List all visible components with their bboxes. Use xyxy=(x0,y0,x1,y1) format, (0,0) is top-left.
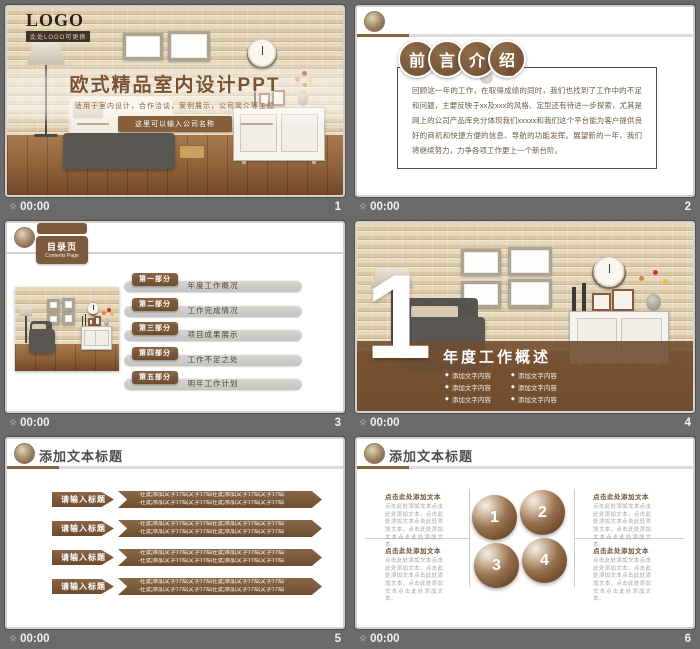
clock-hand xyxy=(609,264,610,274)
slide-cell-3: 目录页 Contents Page xyxy=(0,216,350,432)
slide-header-title: 添加文本标题 xyxy=(39,446,123,465)
text-block-body: 点击此处添加文本点击此处添加文本，点击此处添加文本点击此处添加文本，点击此处添加… xyxy=(385,558,443,604)
decor-dash xyxy=(77,123,109,125)
toc-item[interactable]: 明年工作计划 第五部分 xyxy=(124,371,302,391)
slide-number: 2 xyxy=(685,201,691,213)
bullet-item: ◆添加文字内容 xyxy=(511,393,577,405)
picture-frame xyxy=(508,279,552,307)
picture-frame xyxy=(47,299,59,311)
cover-title: 欧式精品室内设计PPT xyxy=(7,70,343,97)
star-icon[interactable]: ☆ xyxy=(9,634,17,643)
text-block-heading: 点击此处添加文本 xyxy=(593,545,651,555)
text-block-body: 点击此处添加文本点击此处添加文本，点击此处添加文本点击此处添加文本，点击此处添加… xyxy=(593,504,651,550)
decor-dot-brown xyxy=(507,67,516,76)
text-block-body: 点击此处添加文本点击此处添加文本，点击此处添加文本点击此处添加文本，点击此处添加… xyxy=(385,504,443,550)
text-block: 点击此处添加文本 点击此处添加文本点击此处添加文本，点击此处添加文本点击此处添加… xyxy=(593,545,651,604)
slide-number: 4 xyxy=(685,417,691,429)
text-block: 点击此处添加文本 点击此处添加文本点击此处添加文本，点击此处添加文本点击此处添加… xyxy=(385,491,443,550)
bullet-text: 添加文字内容 xyxy=(452,382,491,392)
arrow-label: 请输入标题 xyxy=(52,521,114,536)
arrow-label: 请输入标题 xyxy=(52,492,114,507)
floor-lamp-pole xyxy=(25,316,27,343)
foreword-paragraph: 回顾这一年的工作，在取得成绩的同时，我们也找到了工作中的不足和问题，主要反映于x… xyxy=(412,83,642,158)
toc-item-label: 第三部分 xyxy=(132,322,178,335)
logo-badge xyxy=(364,11,385,32)
diamond-bullet-icon: ◆ xyxy=(445,385,449,390)
progress-fill xyxy=(357,466,409,469)
picture-frame xyxy=(168,31,210,61)
arrow-banner: ·在此添加文字介绍文字介绍在此添加文字介绍文字介绍 ·在此添加文字介绍文字介绍在… xyxy=(118,520,322,537)
decor-dash xyxy=(241,123,273,125)
slide-preview-grid: LOGO 此处LOGO可更换 欧式精品室内设计PPT 适用于室内设计，合作洽谈，… xyxy=(0,0,700,649)
text-block-heading: 点击此处添加文本 xyxy=(385,545,443,555)
bullet-item: ◆添加文字内容 xyxy=(511,381,577,393)
diamond-bullet-icon: ◆ xyxy=(511,373,515,378)
section-bullet-list: ◆添加文字内容 ◆添加文字内容 ◆添加文字内容 ◆添加文字内容 ◆添加文字内容 … xyxy=(445,369,577,405)
slide-time: 00:00 xyxy=(370,201,399,213)
circle-step-1[interactable]: 1 xyxy=(472,495,517,540)
slide-cell-4: 1 年度工作概述 ◆添加文字内容 ◆添加文字内容 ◆添加文字内容 ◆添加文字内容… xyxy=(350,216,700,432)
slide-thumbnail-5[interactable]: 添加文本标题 请输入标题 ·在此添加文字介绍文字介绍在此添加文字介绍文字介绍 ·… xyxy=(5,437,345,629)
picture-frame xyxy=(62,298,76,311)
flower xyxy=(102,311,106,315)
slide-meta-3: ☆00:00 3 xyxy=(5,413,345,432)
slide-number: 3 xyxy=(335,417,341,429)
contents-title: 目录页 xyxy=(36,240,88,253)
slide-meta-6: ☆00:00 6 xyxy=(355,629,695,648)
slide-cell-5: 添加文本标题 请输入标题 ·在此添加文字介绍文字介绍在此添加文字介绍文字介绍 ·… xyxy=(0,432,350,648)
banner-line: ·在此添加文字介绍文字介绍在此添加文字介绍文字介绍 xyxy=(118,587,322,595)
tabletop-frame xyxy=(612,289,634,312)
slide-cell-6: 添加文本标题 点击此处添加文本 点击此处添加文本点击此处添加文本，点击此处添加文… xyxy=(350,432,700,648)
floor-lamp-base xyxy=(34,134,58,137)
star-icon[interactable]: ☆ xyxy=(359,634,367,643)
bullet-item: ◆添加文字内容 xyxy=(445,381,511,393)
arrow-banner: ·在此添加文字介绍文字介绍在此添加文字介绍文字介绍 ·在此添加文字介绍文字介绍在… xyxy=(118,549,322,566)
cover-subtitle: 适用于室内设计，合作洽谈，案例展示，公司简介等主题 xyxy=(7,101,343,111)
candlestick xyxy=(85,314,86,327)
slide-number: 1 xyxy=(335,201,341,213)
flower xyxy=(110,312,114,316)
circle-step-2[interactable]: 2 xyxy=(520,490,565,535)
slide-number: 6 xyxy=(685,633,691,645)
text-block-heading: 点击此处添加文本 xyxy=(593,491,651,501)
text-block-body: 点击此处添加文本点击此处添加文本，点击此处添加文本点击此处添加文本，点击此处添加… xyxy=(593,558,651,604)
banner-line: ·在此添加文字介绍文字介绍在此添加文字介绍文字介绍 xyxy=(118,529,322,537)
floor-lamp-shade xyxy=(27,43,65,65)
progress-bar xyxy=(7,466,343,469)
interior-photo xyxy=(15,287,119,371)
slide-thumbnail-2[interactable]: 前 言 介 绍 回顾这一年的工作，在取得成绩的同时，我们也找到了工作中的不足和问… xyxy=(355,5,695,197)
star-icon[interactable]: ☆ xyxy=(359,202,367,211)
slide-meta-2: ☆00:00 2 xyxy=(355,197,695,216)
banner-line: ·在此添加文字介绍文字介绍在此添加文字介绍文字介绍 xyxy=(118,579,322,587)
slide-thumbnail-6[interactable]: 添加文本标题 点击此处添加文本 点击此处添加文本点击此处添加文本，点击此处添加文… xyxy=(355,437,695,629)
wooden-crate xyxy=(179,145,205,159)
bullet-text: 添加文字内容 xyxy=(518,394,557,404)
cabinet-leg xyxy=(242,160,246,164)
tabletop-frame xyxy=(88,318,94,326)
star-icon[interactable]: ☆ xyxy=(9,202,17,211)
bullet-text: 添加文字内容 xyxy=(518,370,557,380)
circle-step-4[interactable]: 4 xyxy=(522,538,567,583)
toc-item-label: 第四部分 xyxy=(132,347,178,360)
arrow-label: 请输入标题 xyxy=(52,550,114,565)
bullet-item: ◆添加文字内容 xyxy=(445,369,511,381)
company-name-button[interactable]: 这里可以输入公司名称 xyxy=(118,116,232,132)
slide-meta-4: ☆00:00 4 xyxy=(355,413,695,432)
armchair-base xyxy=(63,133,175,169)
star-icon[interactable]: ☆ xyxy=(9,418,17,427)
circle-step-3[interactable]: 3 xyxy=(474,543,519,588)
banner-line: ·在此添加文字介绍文字介绍在此添加文字介绍文字介绍 xyxy=(118,500,322,508)
toc-item-label: 第二部分 xyxy=(132,298,178,311)
slide-meta-5: ☆00:00 5 xyxy=(5,629,345,648)
text-block: 点击此处添加文本 点击此处添加文本点击此处添加文本，点击此处添加文本点击此处添加… xyxy=(593,491,651,550)
slide-cell-2: 前 言 介 绍 回顾这一年的工作，在取得成绩的同时，我们也找到了工作中的不足和问… xyxy=(350,0,700,216)
flower xyxy=(653,270,658,275)
cabinet-door xyxy=(95,330,108,346)
divider-line xyxy=(469,489,470,587)
bullet-text: 添加文字内容 xyxy=(452,394,491,404)
picture-frame xyxy=(508,247,552,275)
section-title: 年度工作概述 xyxy=(443,346,551,367)
text-block-heading: 点击此处添加文本 xyxy=(385,491,443,501)
picture-frame xyxy=(461,249,501,275)
company-name-row: 这里可以输入公司名称 xyxy=(7,116,343,132)
diamond-bullet-icon: ◆ xyxy=(511,385,515,390)
clock-hand xyxy=(262,46,263,55)
bullet-item: ◆添加文字内容 xyxy=(511,369,577,381)
picture-frame xyxy=(123,33,163,60)
slide-header-title: 添加文本标题 xyxy=(389,446,473,465)
arrow-label: 请输入标题 xyxy=(52,579,114,594)
logo-badge xyxy=(364,443,385,464)
cover-text-block: 欧式精品室内设计PPT 适用于室内设计，合作洽谈，案例展示，公司简介等主题 这里… xyxy=(7,70,343,132)
toc-item-label: 第五部分 xyxy=(132,371,178,384)
bullet-text: 添加文字内容 xyxy=(452,370,491,380)
contents-top-tab xyxy=(37,223,87,234)
toc-item[interactable]: 项目成果展示 第三部分 xyxy=(124,322,302,342)
toc-item[interactable]: 年度工作概况 第一部分 xyxy=(124,273,302,293)
logo-subtext: 此处LOGO可更换 xyxy=(26,31,90,42)
tabletop-frame xyxy=(592,293,610,312)
bullet-text: 添加文字内容 xyxy=(518,382,557,392)
flower xyxy=(639,276,644,281)
foreword-text-box: 回顾这一年的工作，在取得成绩的同时，我们也找到了工作中的不足和问题，主要反映于x… xyxy=(397,67,657,169)
banner-line: ·在此添加文字介绍文字介绍在此添加文字介绍文字介绍 xyxy=(118,558,322,566)
bullet-item: ◆添加文字内容 xyxy=(445,393,511,405)
picture-frame xyxy=(62,312,76,325)
toc-item[interactable]: 工作不足之处 第四部分 xyxy=(124,347,302,367)
slide-time: 00:00 xyxy=(370,417,399,429)
floor-lamp-shade xyxy=(19,307,33,316)
arrow-banner: ·在此添加文字介绍文字介绍在此添加文字介绍文字介绍 ·在此添加文字介绍文字介绍在… xyxy=(118,578,322,595)
logo-badge xyxy=(14,443,35,464)
wall-clock xyxy=(592,257,626,289)
logo-badge xyxy=(14,227,35,248)
progress-bar xyxy=(357,34,693,37)
logo-text: LOGO xyxy=(26,11,84,31)
arrow-banner: ·在此添加文字介绍文字介绍在此添加文字介绍文字介绍 ·在此添加文字介绍文字介绍在… xyxy=(118,491,322,508)
slide-meta-1: ☆00:00 1 xyxy=(5,197,345,216)
contents-subtitle: Contents Page xyxy=(40,253,84,258)
banner-line: ·在此添加文字介绍文字介绍在此添加文字介绍文字介绍 xyxy=(118,521,322,529)
text-block: 点击此处添加文本 点击此处添加文本点击此处添加文本，点击此处添加文本点击此处添加… xyxy=(385,545,443,604)
cabinet-leg xyxy=(84,349,85,351)
diamond-bullet-icon: ◆ xyxy=(511,397,515,402)
toc-item-label: 第一部分 xyxy=(132,273,178,286)
banner-line: ·在此添加文字介绍文字介绍在此添加文字介绍文字介绍 xyxy=(118,550,322,558)
slide-thumbnail-4[interactable]: 1 年度工作概述 ◆添加文字内容 ◆添加文字内容 ◆添加文字内容 ◆添加文字内容… xyxy=(355,221,695,413)
diamond-bullet-icon: ◆ xyxy=(445,373,449,378)
candlestick xyxy=(572,287,576,311)
progress-bar xyxy=(357,466,693,469)
slide-cell-1: LOGO 此处LOGO可更换 欧式精品室内设计PPT 适用于室内设计，合作洽谈，… xyxy=(0,0,350,216)
armchair-base xyxy=(29,329,55,353)
candlestick xyxy=(582,283,586,311)
progress-fill xyxy=(7,466,59,469)
section-big-number: 1 xyxy=(365,257,432,377)
contents-tab: 目录页 Contents Page xyxy=(36,236,88,264)
slide-time: 00:00 xyxy=(370,633,399,645)
sideboard-cabinet xyxy=(81,326,112,350)
toc-item[interactable]: 工作完成情况 第二部分 xyxy=(124,298,302,318)
diamond-bullet-icon: ◆ xyxy=(445,397,449,402)
clock-hand xyxy=(93,305,94,309)
cabinet-leg xyxy=(107,349,108,351)
banner-line: ·在此添加文字介绍文字介绍在此添加文字介绍文字介绍 xyxy=(118,492,322,500)
star-icon[interactable]: ☆ xyxy=(359,418,367,427)
progress-fill xyxy=(357,34,409,37)
slide-thumbnail-1[interactable]: LOGO 此处LOGO可更换 欧式精品室内设计PPT 适用于室内设计，合作洽谈，… xyxy=(5,5,345,197)
slide-time: 00:00 xyxy=(20,633,49,645)
slide-thumbnail-3[interactable]: 目录页 Contents Page xyxy=(5,221,345,413)
tabletop-frame xyxy=(94,316,101,326)
slide-time: 00:00 xyxy=(20,417,49,429)
candlestick xyxy=(82,316,83,327)
cabinet-leg xyxy=(312,160,316,164)
slide-time: 00:00 xyxy=(20,201,49,213)
slide-number: 5 xyxy=(335,633,341,645)
contents-photo xyxy=(15,287,119,371)
